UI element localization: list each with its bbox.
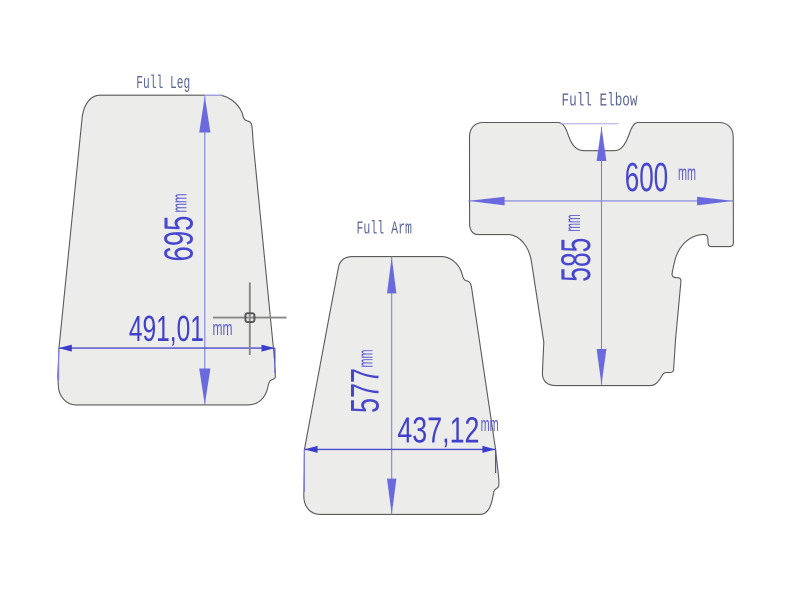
svg-text:491,01: 491,01 <box>129 308 204 349</box>
svg-text:Full Arm: Full Arm <box>357 219 413 240</box>
svg-text:Full Elbow: Full Elbow <box>562 91 638 112</box>
svg-text:Full Leg: Full Leg <box>136 73 190 94</box>
svg-text:585: 585 <box>552 238 599 282</box>
svg-text:mm: mm <box>355 350 377 368</box>
svg-text:mm: mm <box>481 414 499 436</box>
svg-text:577: 577 <box>344 368 388 413</box>
svg-text:mm: mm <box>562 214 585 232</box>
svg-text:mm: mm <box>678 162 696 185</box>
svg-text:695: 695 <box>156 216 202 262</box>
svg-text:mm: mm <box>169 194 191 213</box>
svg-text:mm: mm <box>213 318 233 340</box>
svg-text:600: 600 <box>625 154 669 200</box>
svg-text:437,12: 437,12 <box>397 410 479 451</box>
